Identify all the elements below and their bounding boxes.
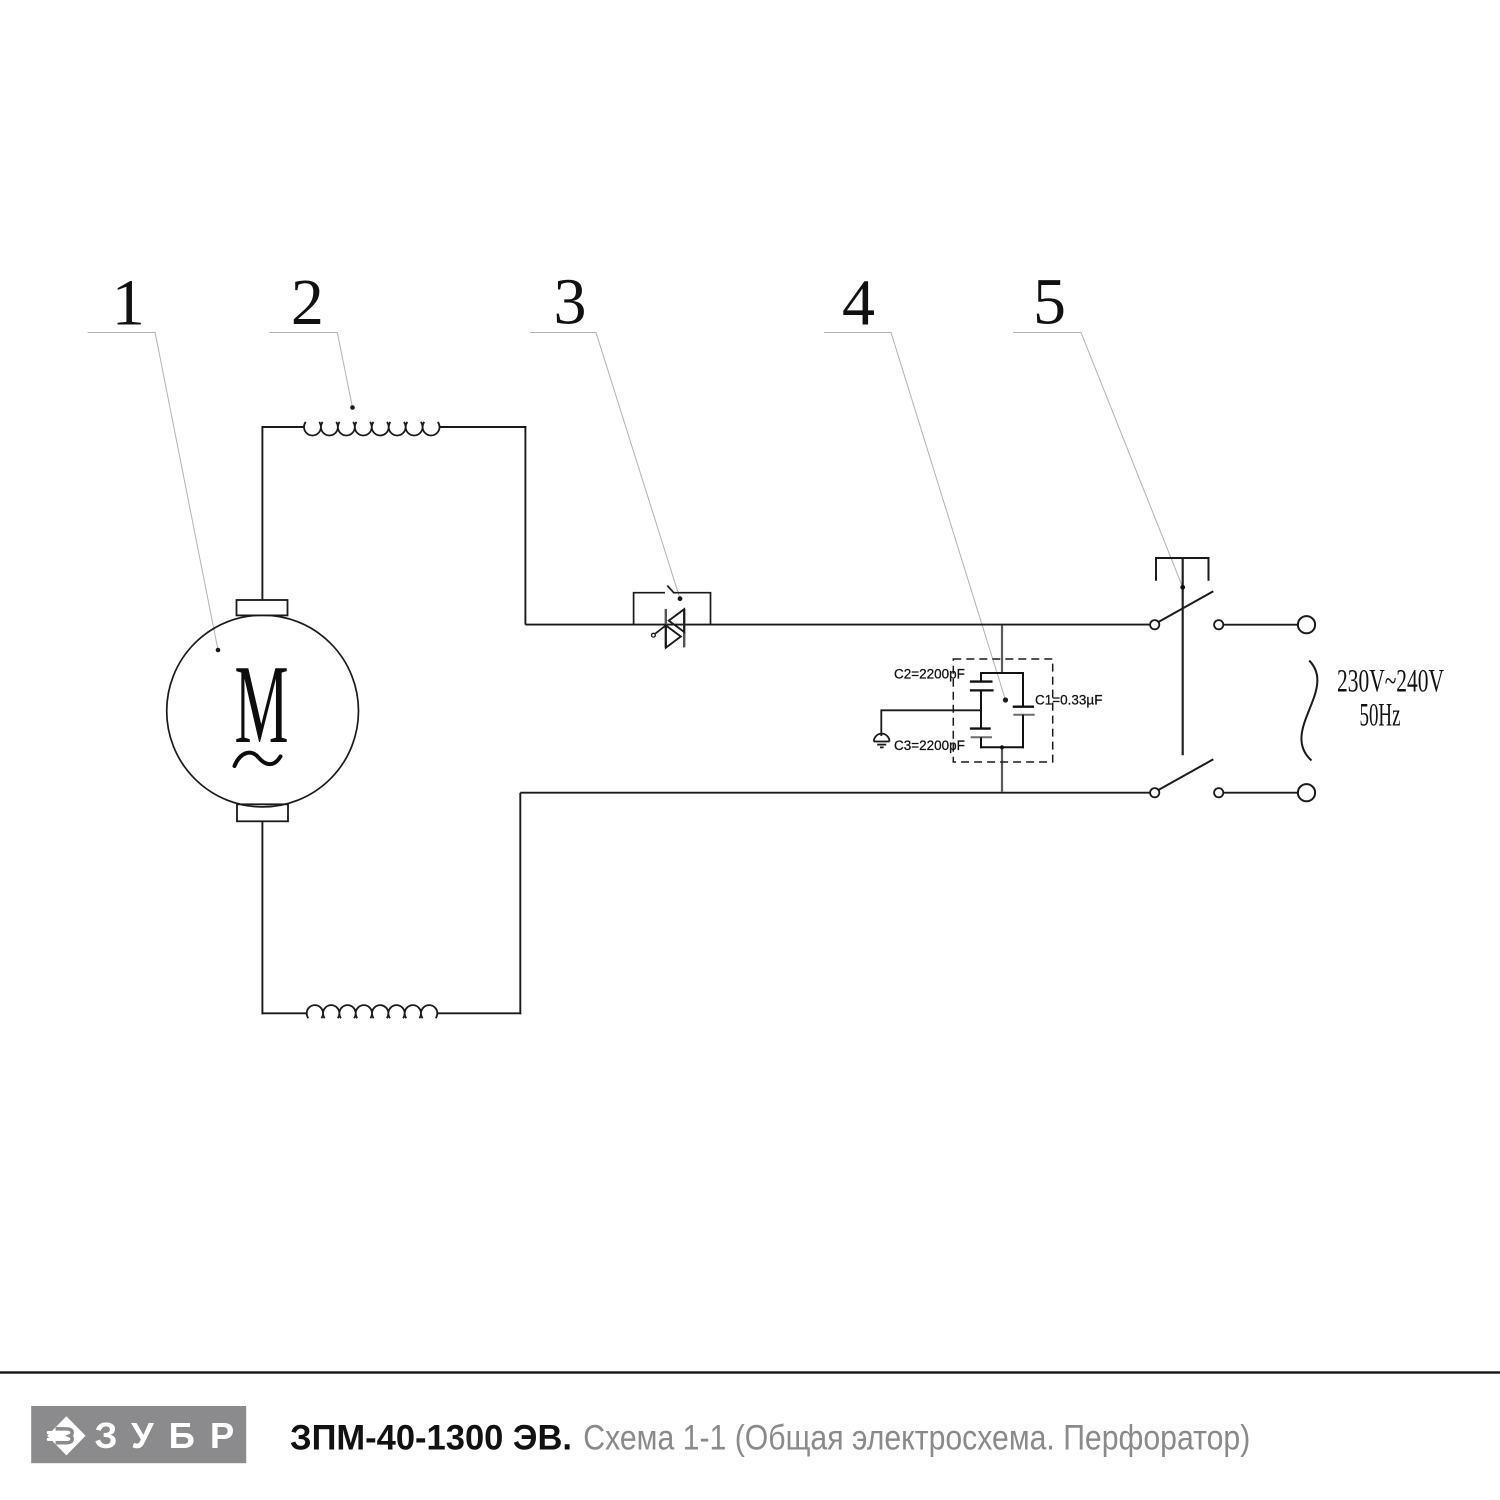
svg-text:ЗУБР: ЗУБР [95,1415,250,1456]
svg-text:3: 3 [554,266,587,339]
svg-text:5: 5 [1033,266,1066,339]
svg-text:ЗПМ-40-1300 ЭВ.: ЗПМ-40-1300 ЭВ. [290,1418,572,1458]
svg-text:50Hz: 50Hz [1360,698,1401,734]
svg-text:Схема 1-1 (Общая электросхема.: Схема 1-1 (Общая электросхема. Перфорато… [583,1418,1250,1458]
svg-text:C1=0.33µF: C1=0.33µF [1035,693,1102,708]
svg-text:1: 1 [112,267,145,340]
svg-text:M: M [235,643,289,767]
svg-text:230V~240V: 230V~240V [1337,663,1444,699]
svg-text:C3=2200pF: C3=2200pF [894,738,965,753]
svg-text:4: 4 [842,267,875,340]
svg-text:2: 2 [291,266,324,339]
svg-text:C2=2200pF: C2=2200pF [894,667,965,682]
